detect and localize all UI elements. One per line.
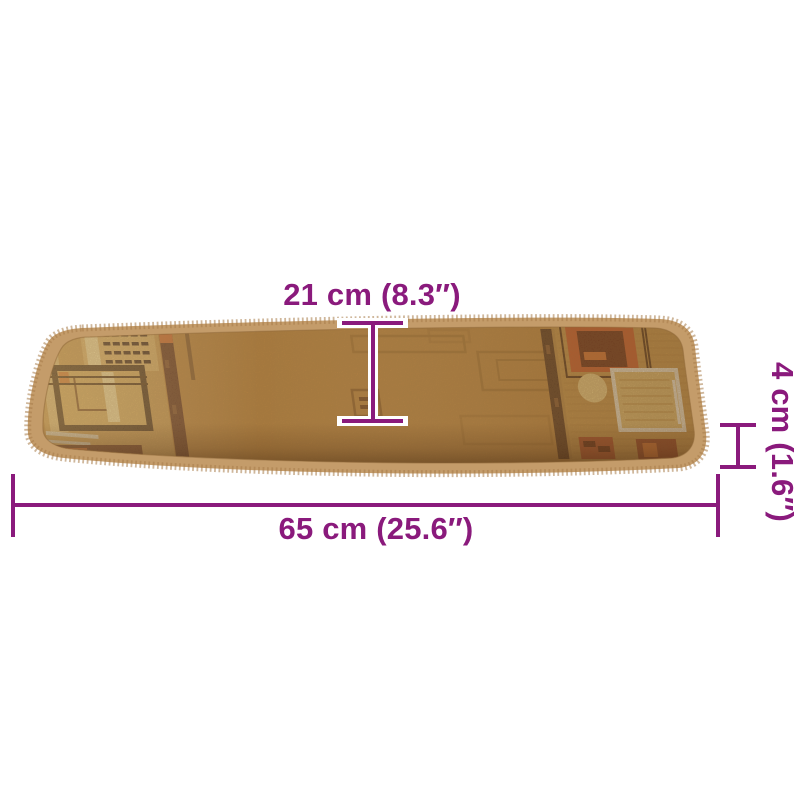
- stair-mat-illustration: [0, 0, 800, 800]
- dimension-height-line: [720, 425, 756, 467]
- dimension-label-depth: 21 cm (8.3″): [192, 277, 552, 313]
- dimension-label-width: 65 cm (25.6″): [196, 511, 556, 547]
- dimension-label-height: 4 cm (1.6″): [764, 362, 800, 522]
- product-dimension-image: 21 cm (8.3″) 4 cm (1.6″) 65 cm (25.6″): [0, 0, 800, 800]
